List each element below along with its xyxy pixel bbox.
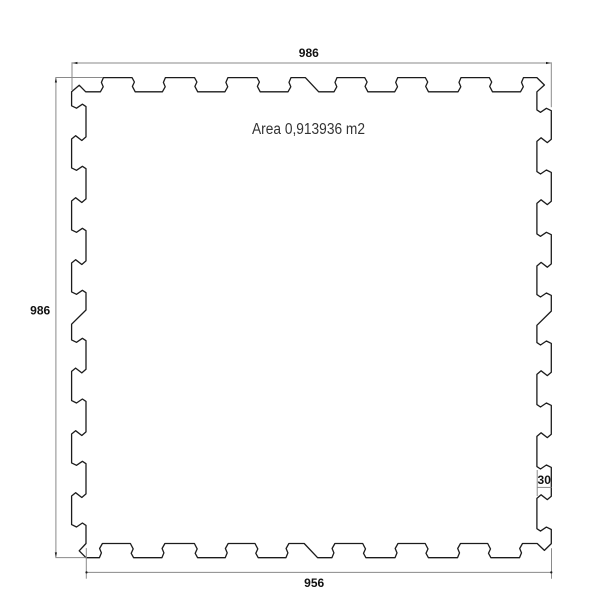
svg-text:986: 986	[30, 304, 50, 318]
svg-text:Area 0,913936 m2: Area 0,913936 m2	[252, 121, 365, 138]
svg-text:986: 986	[299, 46, 319, 60]
svg-text:956: 956	[304, 576, 324, 590]
svg-text:30: 30	[538, 473, 552, 487]
